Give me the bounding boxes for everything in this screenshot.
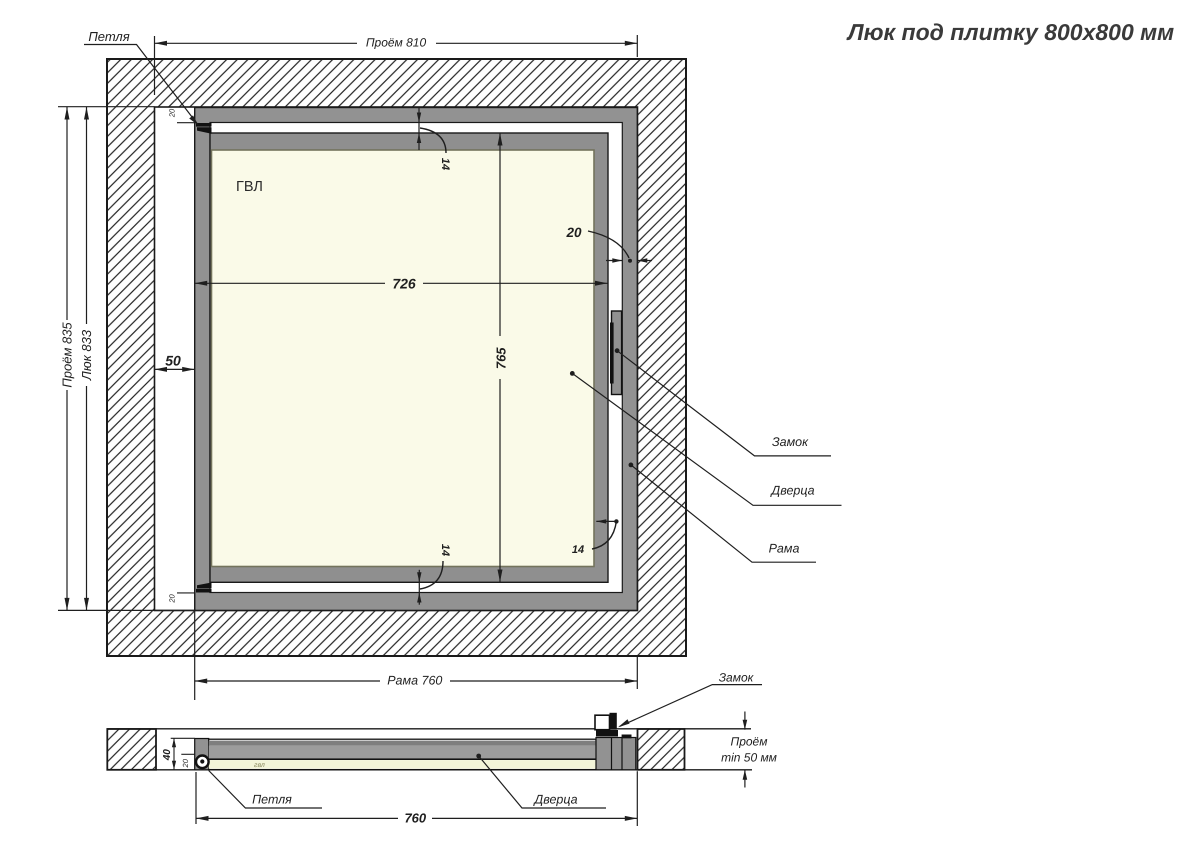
svg-text:min 50 мм: min 50 мм bbox=[721, 751, 777, 765]
svg-text:760: 760 bbox=[404, 811, 426, 826]
svg-text:Рама: Рама bbox=[769, 542, 800, 556]
svg-text:Люк под плитку 800х800 мм: Люк под плитку 800х800 мм bbox=[846, 19, 1174, 45]
svg-text:ГВЛ: ГВЛ bbox=[236, 179, 263, 195]
svg-text:Рама 760: Рама 760 bbox=[387, 674, 442, 688]
svg-text:20: 20 bbox=[181, 758, 190, 768]
svg-text:Проём 835: Проём 835 bbox=[60, 322, 75, 388]
svg-text:20: 20 bbox=[168, 108, 177, 118]
svg-text:Проём 810: Проём 810 bbox=[366, 36, 427, 50]
svg-text:Петля: Петля bbox=[252, 793, 292, 807]
svg-text:Проём: Проём bbox=[731, 735, 768, 749]
svg-text:Замок: Замок bbox=[772, 435, 809, 449]
svg-text:Дверца: Дверца bbox=[769, 484, 814, 498]
svg-text:14: 14 bbox=[439, 158, 451, 170]
svg-text:Петля: Петля bbox=[88, 29, 129, 44]
svg-text:Люк 833: Люк 833 bbox=[79, 329, 94, 381]
svg-text:765: 765 bbox=[494, 347, 509, 369]
svg-text:14: 14 bbox=[439, 544, 451, 556]
svg-text:14: 14 bbox=[572, 544, 584, 556]
svg-text:40: 40 bbox=[162, 749, 173, 762]
svg-text:20: 20 bbox=[565, 225, 582, 240]
svg-text:гвл: гвл bbox=[254, 762, 265, 769]
svg-text:50: 50 bbox=[165, 353, 181, 369]
svg-text:20: 20 bbox=[168, 594, 177, 604]
svg-text:Дверца: Дверца bbox=[532, 793, 577, 807]
svg-text:Замок: Замок bbox=[719, 671, 755, 685]
svg-text:726: 726 bbox=[392, 276, 416, 292]
